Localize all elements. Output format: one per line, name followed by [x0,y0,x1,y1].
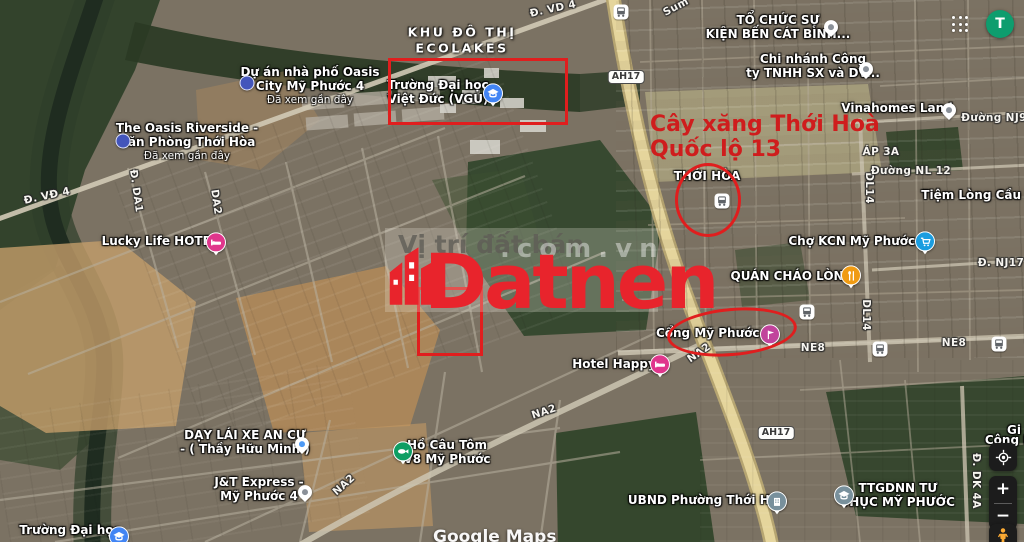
road-label-dk4a: Đ. DK 4A [970,453,982,509]
poi-line: Hotel Happy [572,358,656,372]
poi-line: TTGDNN TƯ [841,482,955,496]
pegman-button[interactable] [989,524,1017,542]
place-pin-icon[interactable] [824,20,838,34]
saved-place-pin-icon[interactable] [240,76,255,91]
poi-line: City Mỹ Phước 4 [240,80,379,94]
poi-label-cho-kcn-my-phuoc-3[interactable]: Chợ KCN Mỹ Phước 3 [788,235,927,249]
poi-line: THỤC MỸ PHƯỚC [841,496,955,510]
fishing-pin-icon[interactable] [393,441,413,461]
poi-label-oasis-city[interactable]: Dự án nhà phố Oasis City Mỹ Phước 4 Đã x… [240,66,379,106]
poi-label-ho-cau-tom[interactable]: Hồ Câu Tôm V8 Mỹ Phước [404,439,491,467]
restaurant-pin-icon[interactable] [841,265,861,285]
poi-line: Hồ Câu Tôm [404,439,491,453]
annotation-text-line: Quốc lộ 13 [650,137,880,162]
poi-line: The Oasis Riverside - [116,122,258,136]
road-label-dl14-b: DL14 [860,299,872,331]
government-building-pin-icon[interactable] [767,491,787,511]
my-location-icon [995,449,1012,466]
poi-label-oasis-riverside[interactable]: The Oasis Riverside - Văn Phòng Thới Hòa… [116,122,258,162]
poi-line: QUÁN CHÁO LÒNG [731,270,854,284]
poi-line: DẠY LÁI XE AN CƯ [180,429,310,443]
google-maps-attribution: Google Maps [433,527,556,542]
zoom-control[interactable]: + − [989,476,1017,530]
poi-line: Mỹ Phước 4 [214,490,303,504]
place-pin-icon[interactable] [942,103,956,117]
road-label-ne8-a: NE8 [801,342,825,354]
poi-label-tiem-long-cau-ut[interactable]: Tiệm Lòng Cầu Út [921,189,1024,203]
university-pin-icon[interactable] [109,526,129,542]
poi-subtext: Đã xem gần đây [116,150,258,162]
road-label-nj9: Đường NJ9 [961,112,1024,124]
my-location-button[interactable] [989,443,1017,471]
place-pin-icon[interactable] [859,62,873,76]
bus-stop-icon[interactable] [614,5,629,20]
poi-label-quan-chao-long[interactable]: QUÁN CHÁO LÒNG [731,270,854,284]
saved-place-pin-icon[interactable] [116,134,131,149]
poi-line: J&T Express - [214,476,303,490]
poi-label-truong-dai-hoc[interactable]: Trường Đại học [19,524,120,538]
poi-line: Trường Đại học [19,524,120,538]
hotel-pin-icon[interactable] [650,354,670,374]
annotation-rect-vgu [388,58,568,125]
road-shield-ah17-bottom: AH17 [758,426,795,440]
bus-stop-icon[interactable] [873,342,888,357]
poi-line: Văn Phòng Thới Hòa [116,136,258,150]
pegman-icon [997,526,1009,542]
area-label-ecolakes: KHU ĐÔ THỊ ECOLAKES [408,24,517,55]
poi-label-lucky-life-hotel[interactable]: Lucky Life HOTEL [102,235,219,249]
poi-line: - ( Thầy Hữu Minh ) [180,443,310,457]
poi-line: Lucky Life HOTEL [102,235,219,249]
school-pin-icon[interactable] [834,485,854,505]
poi-label-ubnd-thoi-hoa[interactable]: UBND Phường Thới Hoà [628,494,786,508]
poi-line: UBND Phường Thới Hoà [628,494,786,508]
poi-label-ttgdnn[interactable]: TTGDNN TƯ THỤC MỸ PHƯỚC [841,482,955,510]
satellite-map[interactable]: Đ. VD 4 Sum Đ. VĐ 4 Đ. DA1 DA2 DL14 DL14… [0,0,1024,542]
poi-line: Chợ KCN Mỹ Phước 3 [788,235,927,249]
road-label-ne8-b: NE8 [942,337,966,349]
annotation-text-line: Cây xăng Thới Hoà [650,112,880,137]
place-pin-icon[interactable] [295,437,309,451]
market-pin-icon[interactable] [915,231,935,251]
watermark-brand: Datnen [386,244,716,320]
road-label-nj17: Đ. NJ17 [978,257,1024,269]
poi-label-day-lai-xe-an-cu[interactable]: DẠY LÁI XE AN CƯ - ( Thầy Hữu Minh ) [180,429,310,457]
apps-grid-icon[interactable] [952,16,969,33]
poi-line: Tiệm Lòng Cầu Út [921,189,1024,203]
poi-subtext: Đã xem gần đây [240,94,379,106]
watermark-brand-text: Datnen [424,244,716,320]
hotel-pin-icon[interactable] [206,232,226,252]
poi-line: V8 Mỹ Phước [404,453,491,467]
poi-label-jt-express[interactable]: J&T Express - Mỹ Phước 4 [214,476,303,504]
road-shield-ah17-top: AH17 [608,70,645,84]
annotation-circle-thoi-hoa [675,163,741,237]
place-pin-icon[interactable] [298,485,312,499]
bus-stop-icon[interactable] [800,305,815,320]
area-label-line: ECOLAKES [408,40,517,56]
account-avatar[interactable]: T [986,10,1014,38]
road-label-nl12: Đường NL 12 [871,165,951,177]
zoom-in-button[interactable]: + [989,476,1017,503]
annotation-gas-station-text: Cây xăng Thới Hoà Quốc lộ 13 [650,112,880,162]
poi-label-hotel-happy[interactable]: Hotel Happy [572,358,656,372]
bus-stop-icon[interactable] [992,337,1007,352]
poi-line: Dự án nhà phố Oasis [240,66,379,80]
area-label-line: KHU ĐÔ THỊ [408,24,517,40]
